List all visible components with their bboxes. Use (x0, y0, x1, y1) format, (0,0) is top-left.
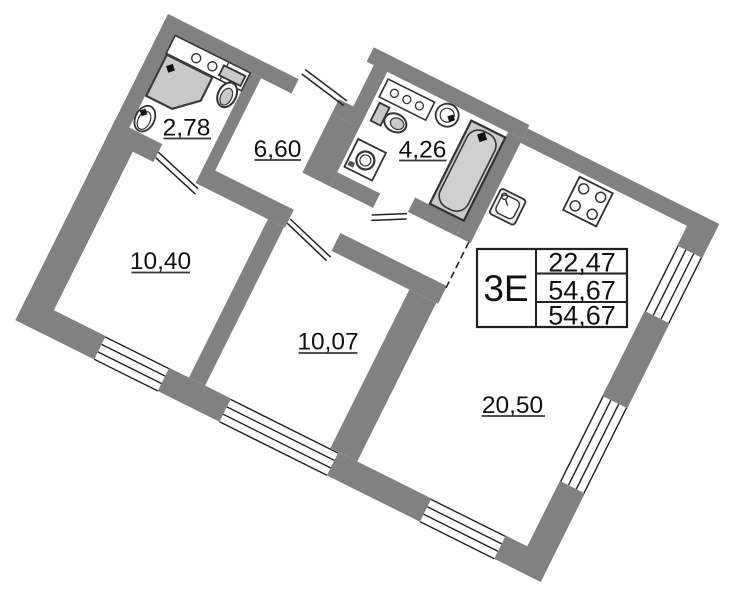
svg-text:20,50: 20,50 (482, 392, 543, 419)
svg-text:54,67: 54,67 (548, 301, 616, 331)
svg-text:4,26: 4,26 (399, 137, 447, 164)
svg-text:2,78: 2,78 (163, 115, 211, 142)
svg-text:3Е: 3Е (483, 268, 528, 309)
svg-text:10,40: 10,40 (130, 248, 191, 275)
svg-text:6,60: 6,60 (254, 136, 302, 163)
svg-text:22,47: 22,47 (548, 248, 616, 278)
svg-text:10,07: 10,07 (297, 329, 358, 356)
